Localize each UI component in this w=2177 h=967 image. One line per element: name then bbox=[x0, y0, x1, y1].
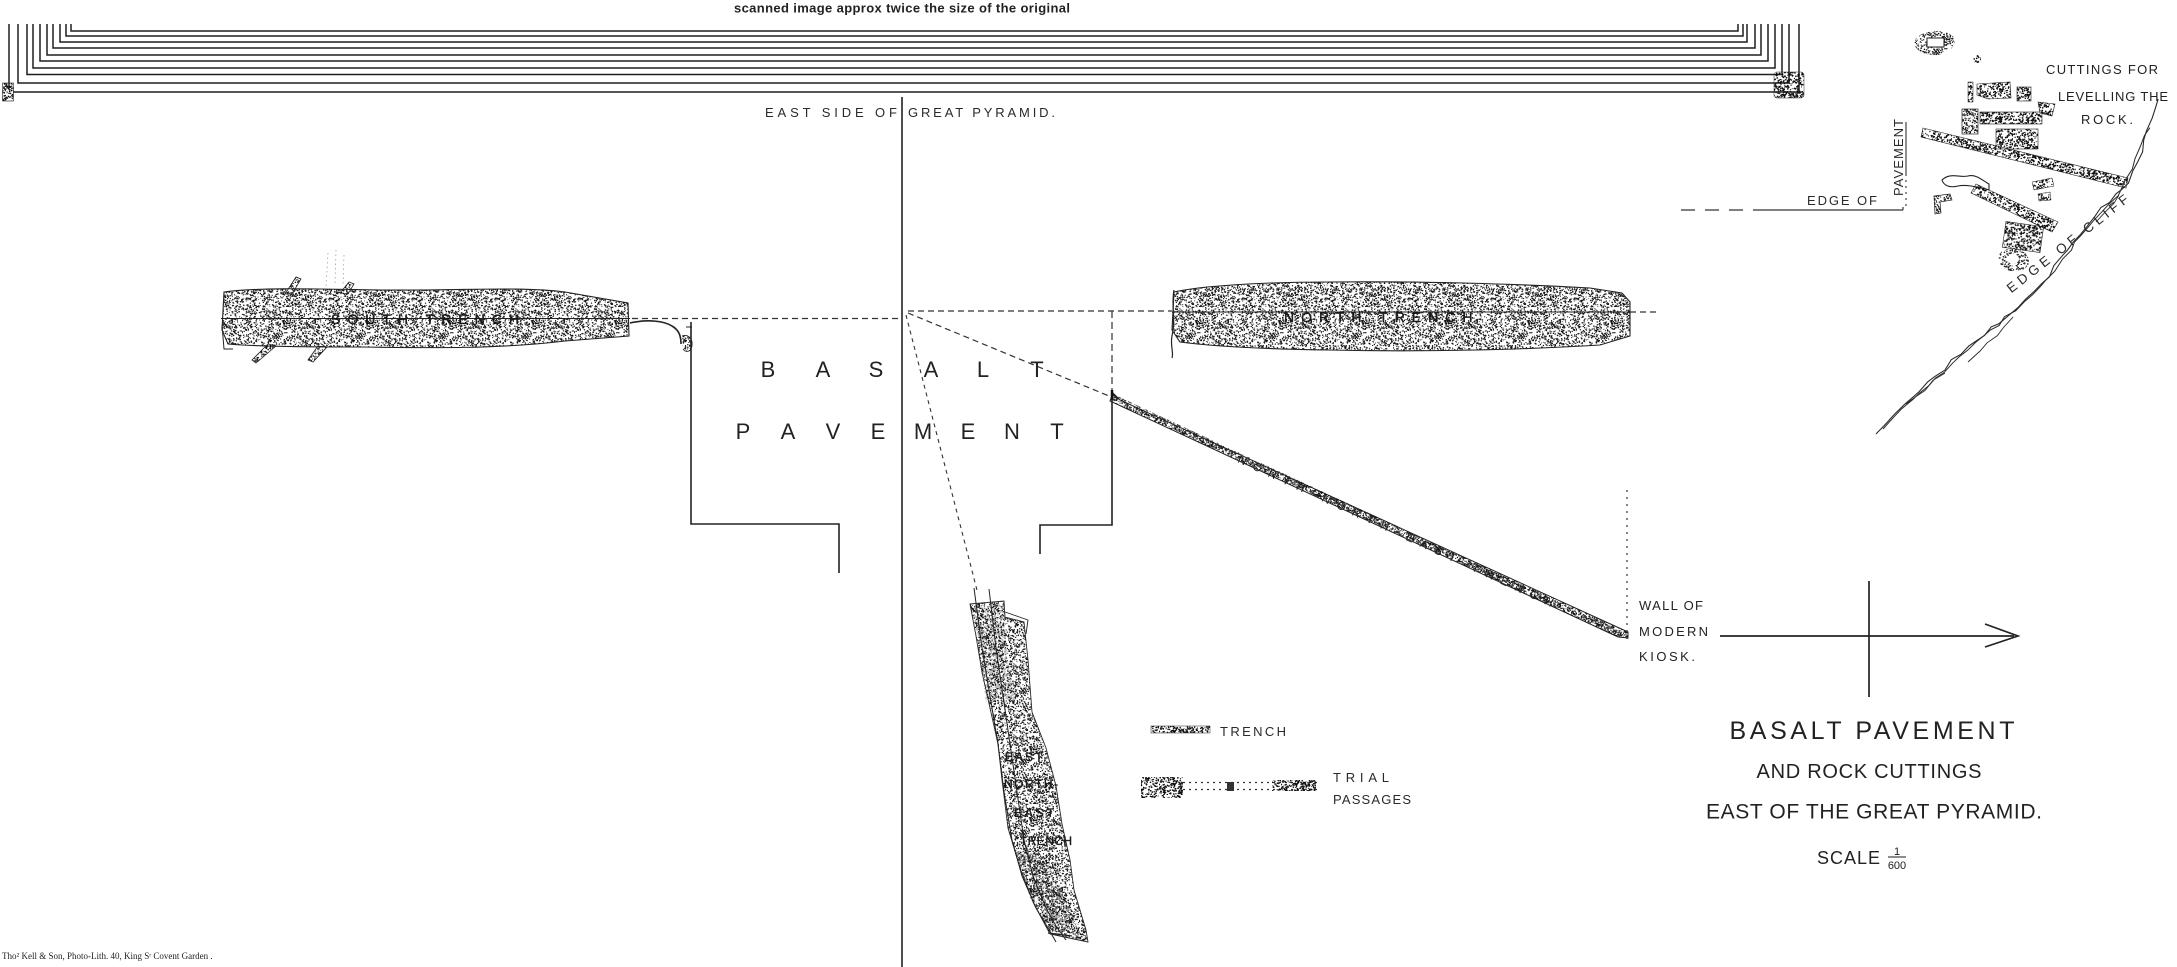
svg-text:EDGE OF: EDGE OF bbox=[1807, 193, 1877, 208]
svg-text:NORTH TRENCH: NORTH TRENCH bbox=[1284, 309, 1480, 325]
svg-text:NORTH-: NORTH- bbox=[1004, 777, 1058, 791]
svg-text:1: 1 bbox=[1894, 846, 1900, 858]
svg-text:AND ROCK CUTTINGS: AND ROCK CUTTINGS bbox=[1757, 761, 1982, 783]
svg-text:Tho² Kell & Son, Photo-Lith. 4: Tho² Kell & Son, Photo-Lith. 40, King Sʳ… bbox=[2, 951, 213, 961]
svg-text:PAVEMENT: PAVEMENT bbox=[1891, 119, 1906, 196]
svg-text:TRENCH: TRENCH bbox=[1020, 834, 1072, 848]
svg-text:EAST-: EAST- bbox=[1005, 750, 1048, 764]
svg-text:SOUTH TRENCH: SOUTH TRENCH bbox=[331, 311, 526, 327]
svg-text:LEVELLING THE: LEVELLING THE bbox=[2058, 89, 2168, 104]
svg-text:CUTTINGS FOR: CUTTINGS FOR bbox=[2046, 62, 2158, 77]
svg-text:600: 600 bbox=[1888, 860, 1906, 872]
svg-text:MODERN: MODERN bbox=[1639, 624, 1708, 639]
svg-text:ROCK.: ROCK. bbox=[2081, 112, 2133, 127]
svg-text:WALL OF: WALL OF bbox=[1639, 598, 1703, 613]
svg-text:SCALE: SCALE bbox=[1817, 848, 1880, 868]
svg-text:EAST OF THE GREAT PYRAMID.: EAST OF THE GREAT PYRAMID. bbox=[1706, 801, 2042, 824]
svg-text:scanned image approx twice the: scanned image approx twice the size of t… bbox=[734, 1, 1070, 16]
svg-text:PASSAGES: PASSAGES bbox=[1333, 792, 1411, 807]
svg-text:TRENCH: TRENCH bbox=[1220, 724, 1286, 739]
